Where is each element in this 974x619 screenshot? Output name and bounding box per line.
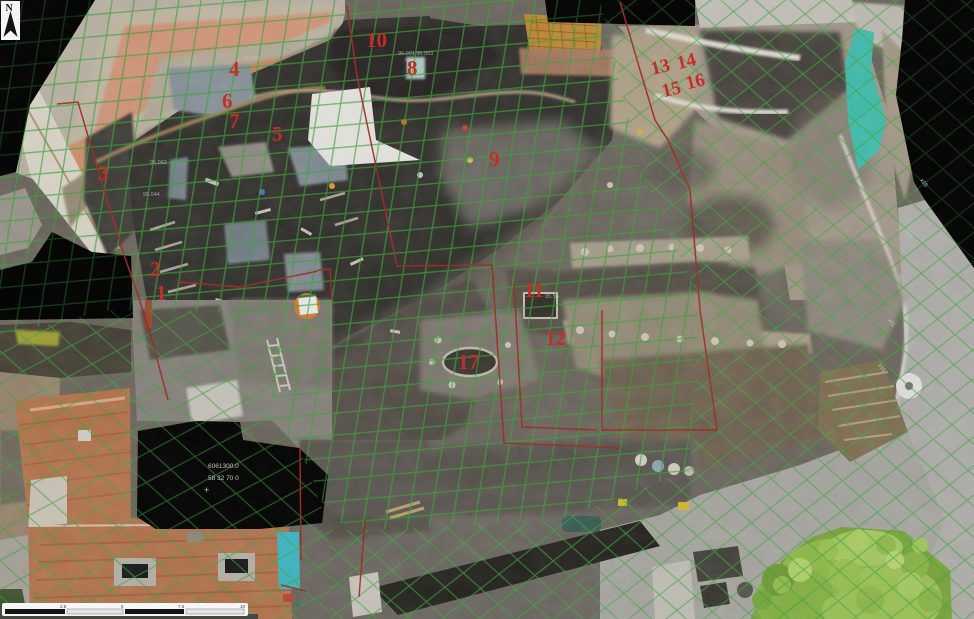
svg-text:N: N (6, 3, 14, 14)
svg-text:2.5: 2.5 (60, 604, 67, 609)
svg-text:7.5: 7.5 (178, 604, 185, 609)
svg-text:10: 10 (240, 604, 246, 609)
